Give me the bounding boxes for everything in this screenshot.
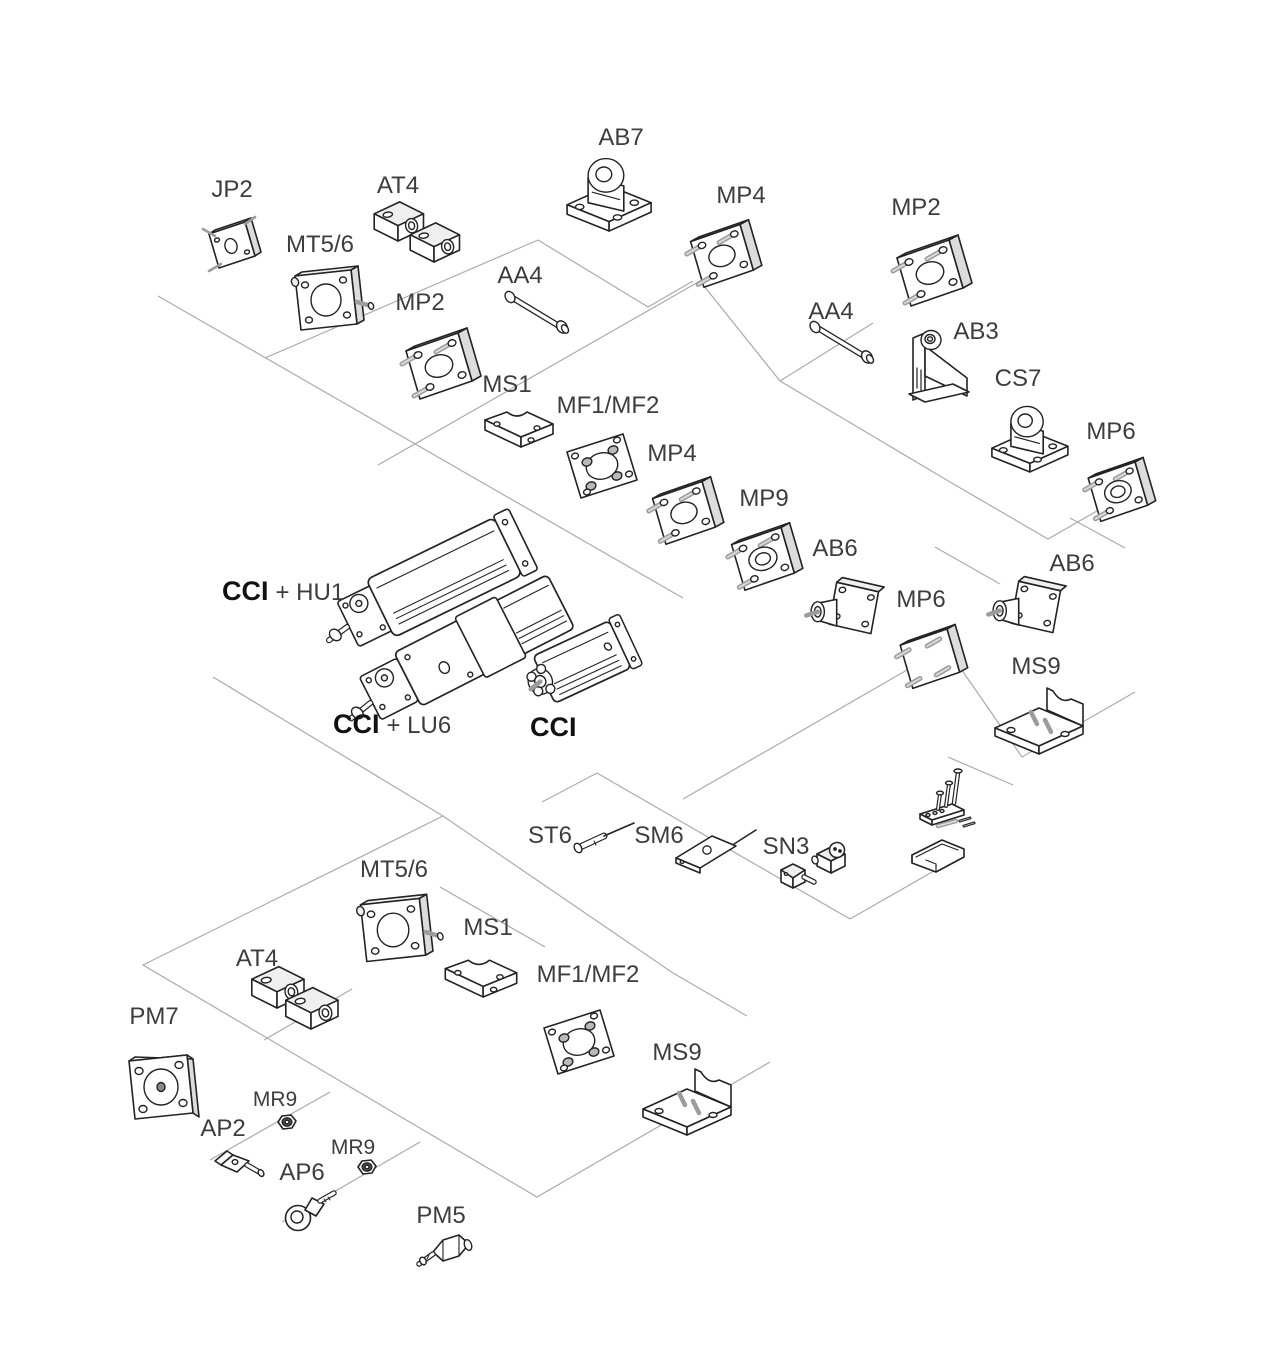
part-label-jp2: JP2	[211, 176, 252, 203]
part-label-mf12-bot: MF1/MF2	[537, 961, 640, 988]
part-mf12-top	[567, 434, 637, 498]
part-mp9	[728, 523, 803, 590]
connector-line-c4	[780, 381, 1137, 539]
exploded-parts-diagram: JP2MT5/6AT4AB7MP4MP2AA4MP2AA4AB3CS7MP6MS…	[0, 0, 1280, 1347]
part-ab7	[567, 159, 651, 231]
part-ms9-right	[995, 688, 1083, 754]
part-pm7	[129, 1055, 199, 1119]
part-label-st6: ST6	[528, 822, 572, 849]
part-label-ms1-bot: MS1	[463, 914, 512, 941]
part-label-sn3: SN3	[763, 833, 810, 860]
part-label-mp4-top: MP4	[716, 182, 765, 209]
part-mp4-mid	[649, 477, 724, 544]
part-label-ap6: AP6	[279, 1159, 324, 1186]
part-label-ms9-bot: MS9	[652, 1039, 701, 1066]
part-label-mp4-mid: MP4	[647, 440, 696, 467]
part-ab6-right	[988, 577, 1066, 633]
part-label-ap2: AP2	[200, 1115, 245, 1142]
part-label-mp9: MP9	[739, 485, 788, 512]
part-mt56-bot	[355, 894, 444, 961]
part-label-mp6-mid: MP6	[896, 586, 945, 613]
part-mp2-topright	[893, 235, 972, 306]
part-label-ms1-top: MS1	[482, 371, 531, 398]
part-aa4-left	[503, 290, 570, 336]
part-sm6	[676, 830, 756, 873]
part-label-ms9-right: MS9	[1011, 653, 1060, 680]
part-label-mp2-topright: MP2	[891, 194, 940, 221]
part-label-aa4-left: AA4	[497, 262, 542, 289]
part-hw-kit	[920, 769, 974, 826]
connector-line-c18	[1070, 518, 1125, 548]
part-ms9-bot	[643, 1069, 731, 1135]
part-label-mr9-1: MR9	[253, 1088, 297, 1111]
part-label-cci-lu6: CCI+ LU6	[333, 709, 451, 739]
part-label-ab6-mid: AB6	[812, 535, 857, 562]
part-label-cci-hu1: CCI+ HU1	[222, 576, 344, 606]
part-label-pm7: PM7	[129, 1003, 178, 1030]
diagram-page: JP2MT5/6AT4AB7MP4MP2AA4MP2AA4AB3CS7MP6MS…	[0, 0, 1280, 1347]
part-mf12-bot	[544, 1010, 614, 1074]
part-label-cs7: CS7	[995, 365, 1042, 392]
connector-lines	[143, 240, 1137, 1222]
labels-layer: JP2MT5/6AT4AB7MP4MP2AA4MP2AA4AB3CS7MP6MS…	[129, 124, 1135, 1229]
part-mp2-left	[402, 328, 481, 399]
part-label-mf12-top: MF1/MF2	[557, 392, 660, 419]
part-mp4-top	[687, 220, 762, 287]
part-label-at4-top: AT4	[377, 172, 419, 199]
part-ap6	[286, 1193, 335, 1231]
part-label-ab7: AB7	[598, 124, 643, 151]
part-label-pm5: PM5	[416, 1202, 465, 1229]
part-label-mp2-left: MP2	[395, 289, 444, 316]
part-ms1-bot	[445, 960, 516, 997]
part-label-sm6: SM6	[634, 822, 683, 849]
part-label-ab6-right: AB6	[1049, 550, 1094, 577]
part-label-mp6-right: MP6	[1086, 418, 1135, 445]
part-cs7	[992, 406, 1068, 472]
part-label-mr9-2: MR9	[331, 1136, 375, 1159]
part-mr9-2	[358, 1160, 376, 1174]
part-jp2	[203, 217, 261, 271]
part-mt56-top	[290, 266, 374, 330]
part-label-ab3: AB3	[953, 318, 998, 345]
part-ap2	[215, 1151, 265, 1177]
part-mr9-1	[278, 1115, 296, 1129]
part-pm5	[418, 1235, 473, 1266]
part-label-mt56-bot: MT5/6	[360, 856, 428, 883]
part-ms1-top	[485, 412, 553, 447]
part-label-cci: CCI	[530, 712, 577, 742]
part-ab6-mid	[806, 578, 884, 634]
connector-line-c16	[683, 651, 940, 799]
part-clamp	[912, 840, 964, 872]
part-aa4-right	[808, 320, 875, 366]
part-st6	[573, 823, 634, 854]
part-label-at4-bot: AT4	[236, 945, 278, 972]
part-mp6-mid	[897, 625, 968, 689]
connector-line-c5	[935, 547, 1000, 584]
part-label-mt56-top: MT5/6	[286, 231, 354, 258]
part-label-aa4-right: AA4	[808, 298, 853, 325]
